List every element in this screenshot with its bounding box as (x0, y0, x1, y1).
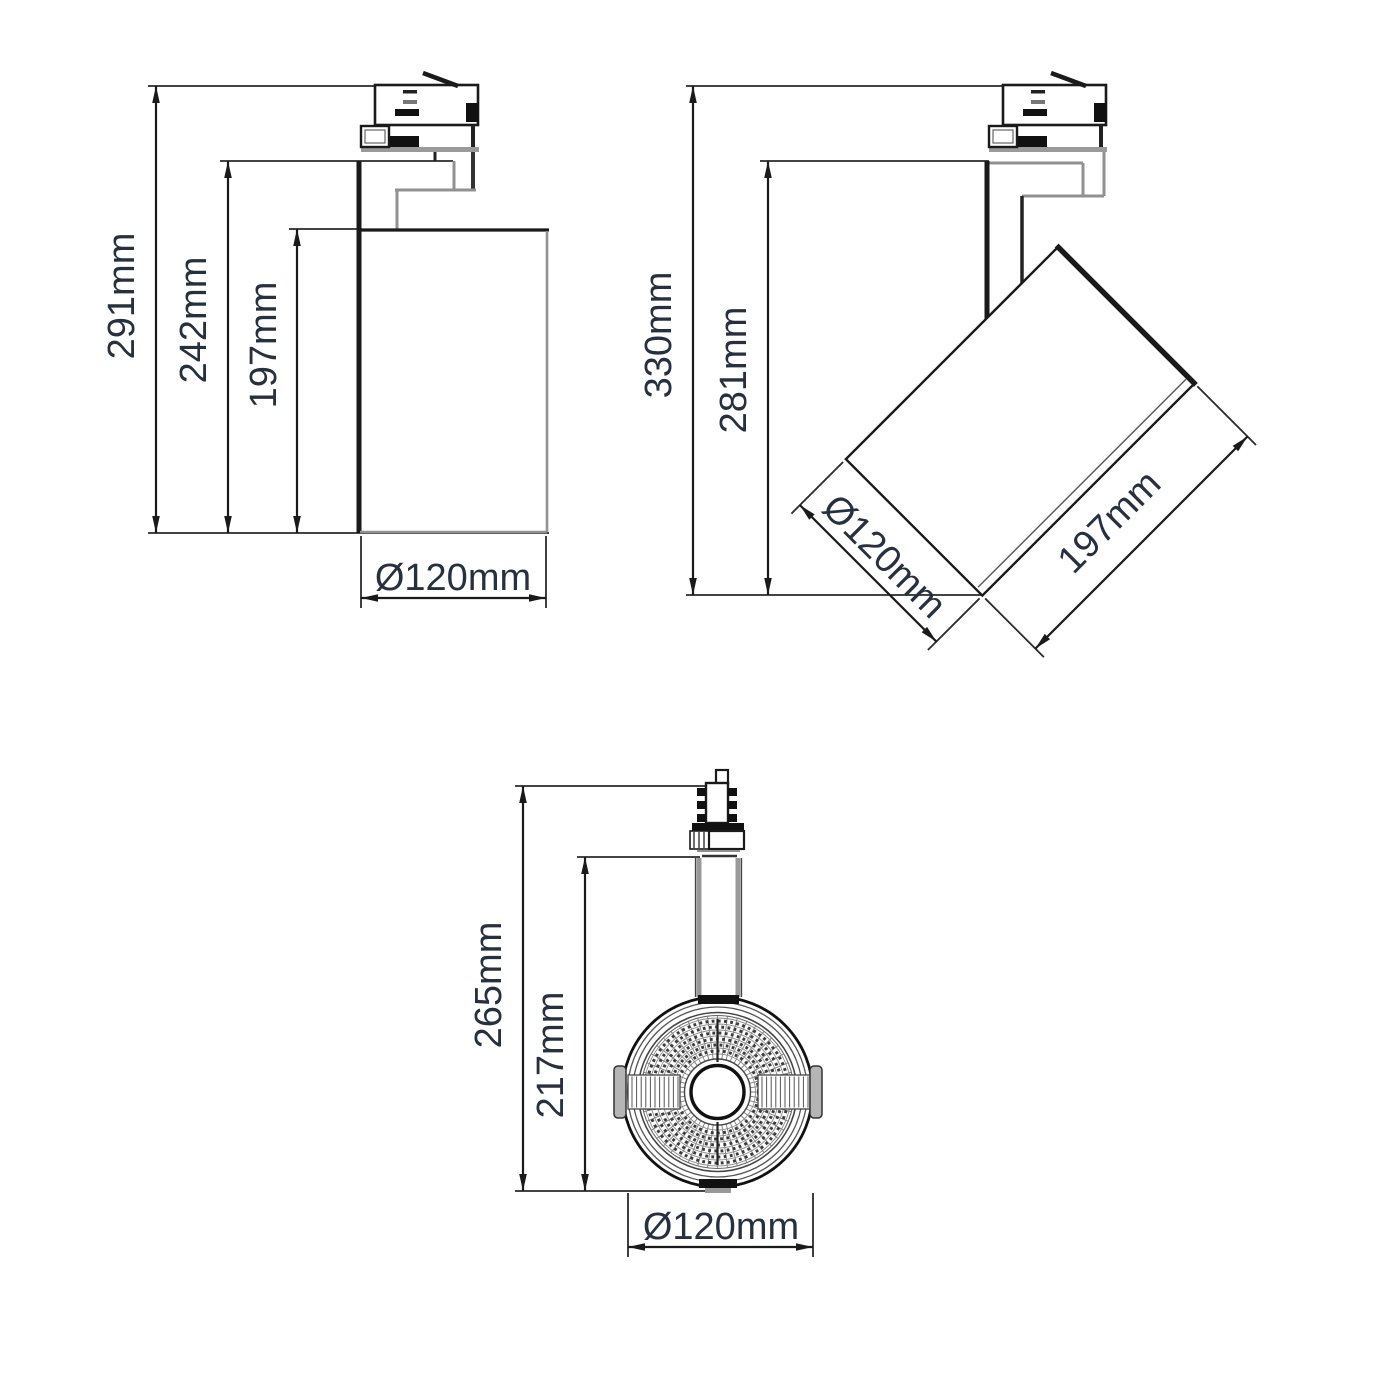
dim-arrow (529, 594, 546, 602)
bottom-tab-foot (705, 1188, 731, 1193)
center-hole (691, 1066, 744, 1119)
pin-tooth (728, 801, 737, 809)
dim-281-label: 281mm (713, 307, 755, 434)
side-view: 291mm 242mm 197mm Ø120mm (101, 73, 549, 608)
tilted-lamp-body: Ø120mm 197mm (790, 246, 1256, 712)
dim-d120-label: Ø120mm (375, 557, 531, 599)
front-view: 265mm 217mm Ø120mm (468, 770, 822, 1257)
side-tab-right (758, 1075, 810, 1109)
dim-arrow (152, 516, 160, 533)
flange-top (692, 823, 744, 831)
dim-arrow (293, 229, 301, 246)
pin-tooth (697, 801, 706, 809)
dim-arrow (581, 857, 589, 874)
tab-frame (628, 1075, 680, 1109)
dim-arrow (224, 161, 232, 178)
track-adapter (989, 73, 1107, 152)
side-boss-left (614, 1066, 626, 1118)
dim-arrow (361, 594, 378, 602)
side-tab-left (628, 1075, 680, 1109)
dim-arrow (152, 86, 160, 103)
dim-197-label: 197mm (243, 282, 285, 409)
dim-arrow (581, 1174, 589, 1191)
dim-217-label: 217mm (530, 992, 572, 1119)
dim-330-label: 330mm (638, 272, 680, 399)
stem (696, 858, 742, 997)
drawing-canvas: 291mm 242mm 197mm Ø120mm Ø120mm (0, 0, 1389, 1389)
dimension-drawing: 291mm 242mm 197mm Ø120mm Ø120mm (0, 0, 1389, 1389)
track-adapter (361, 73, 479, 152)
pin-tooth (697, 814, 706, 822)
side-boss-right (810, 1066, 822, 1118)
dim-291-label: 291mm (101, 233, 143, 360)
flange-body (709, 831, 744, 849)
lens-face (614, 995, 822, 1193)
bottom-tab (699, 1179, 737, 1188)
dim-arrow (764, 161, 772, 178)
pin-tooth (728, 814, 737, 822)
tab-frame (758, 1075, 810, 1109)
pin-tooth (697, 788, 706, 796)
dim-arrow (689, 86, 697, 103)
dim-arrow (224, 516, 232, 533)
tilted-view: Ø120mm 197mm 330mm 281mm (638, 73, 1256, 712)
track-pin (706, 783, 728, 823)
dim-arrow (628, 1243, 645, 1251)
dim-d120-label: Ø120mm (643, 1206, 799, 1248)
track-pin-head (690, 770, 744, 856)
dim-arrow (519, 786, 527, 803)
dim-265-label: 265mm (468, 922, 510, 1049)
pin-tooth (728, 788, 737, 796)
dim-arrow (764, 578, 772, 595)
dim-arrow (519, 1174, 527, 1191)
dim-arrow (689, 578, 697, 595)
dim-242-label: 242mm (173, 257, 215, 384)
stem-cap (698, 995, 739, 1004)
dim-arrow (796, 1243, 813, 1251)
dim-arrow (293, 516, 301, 533)
